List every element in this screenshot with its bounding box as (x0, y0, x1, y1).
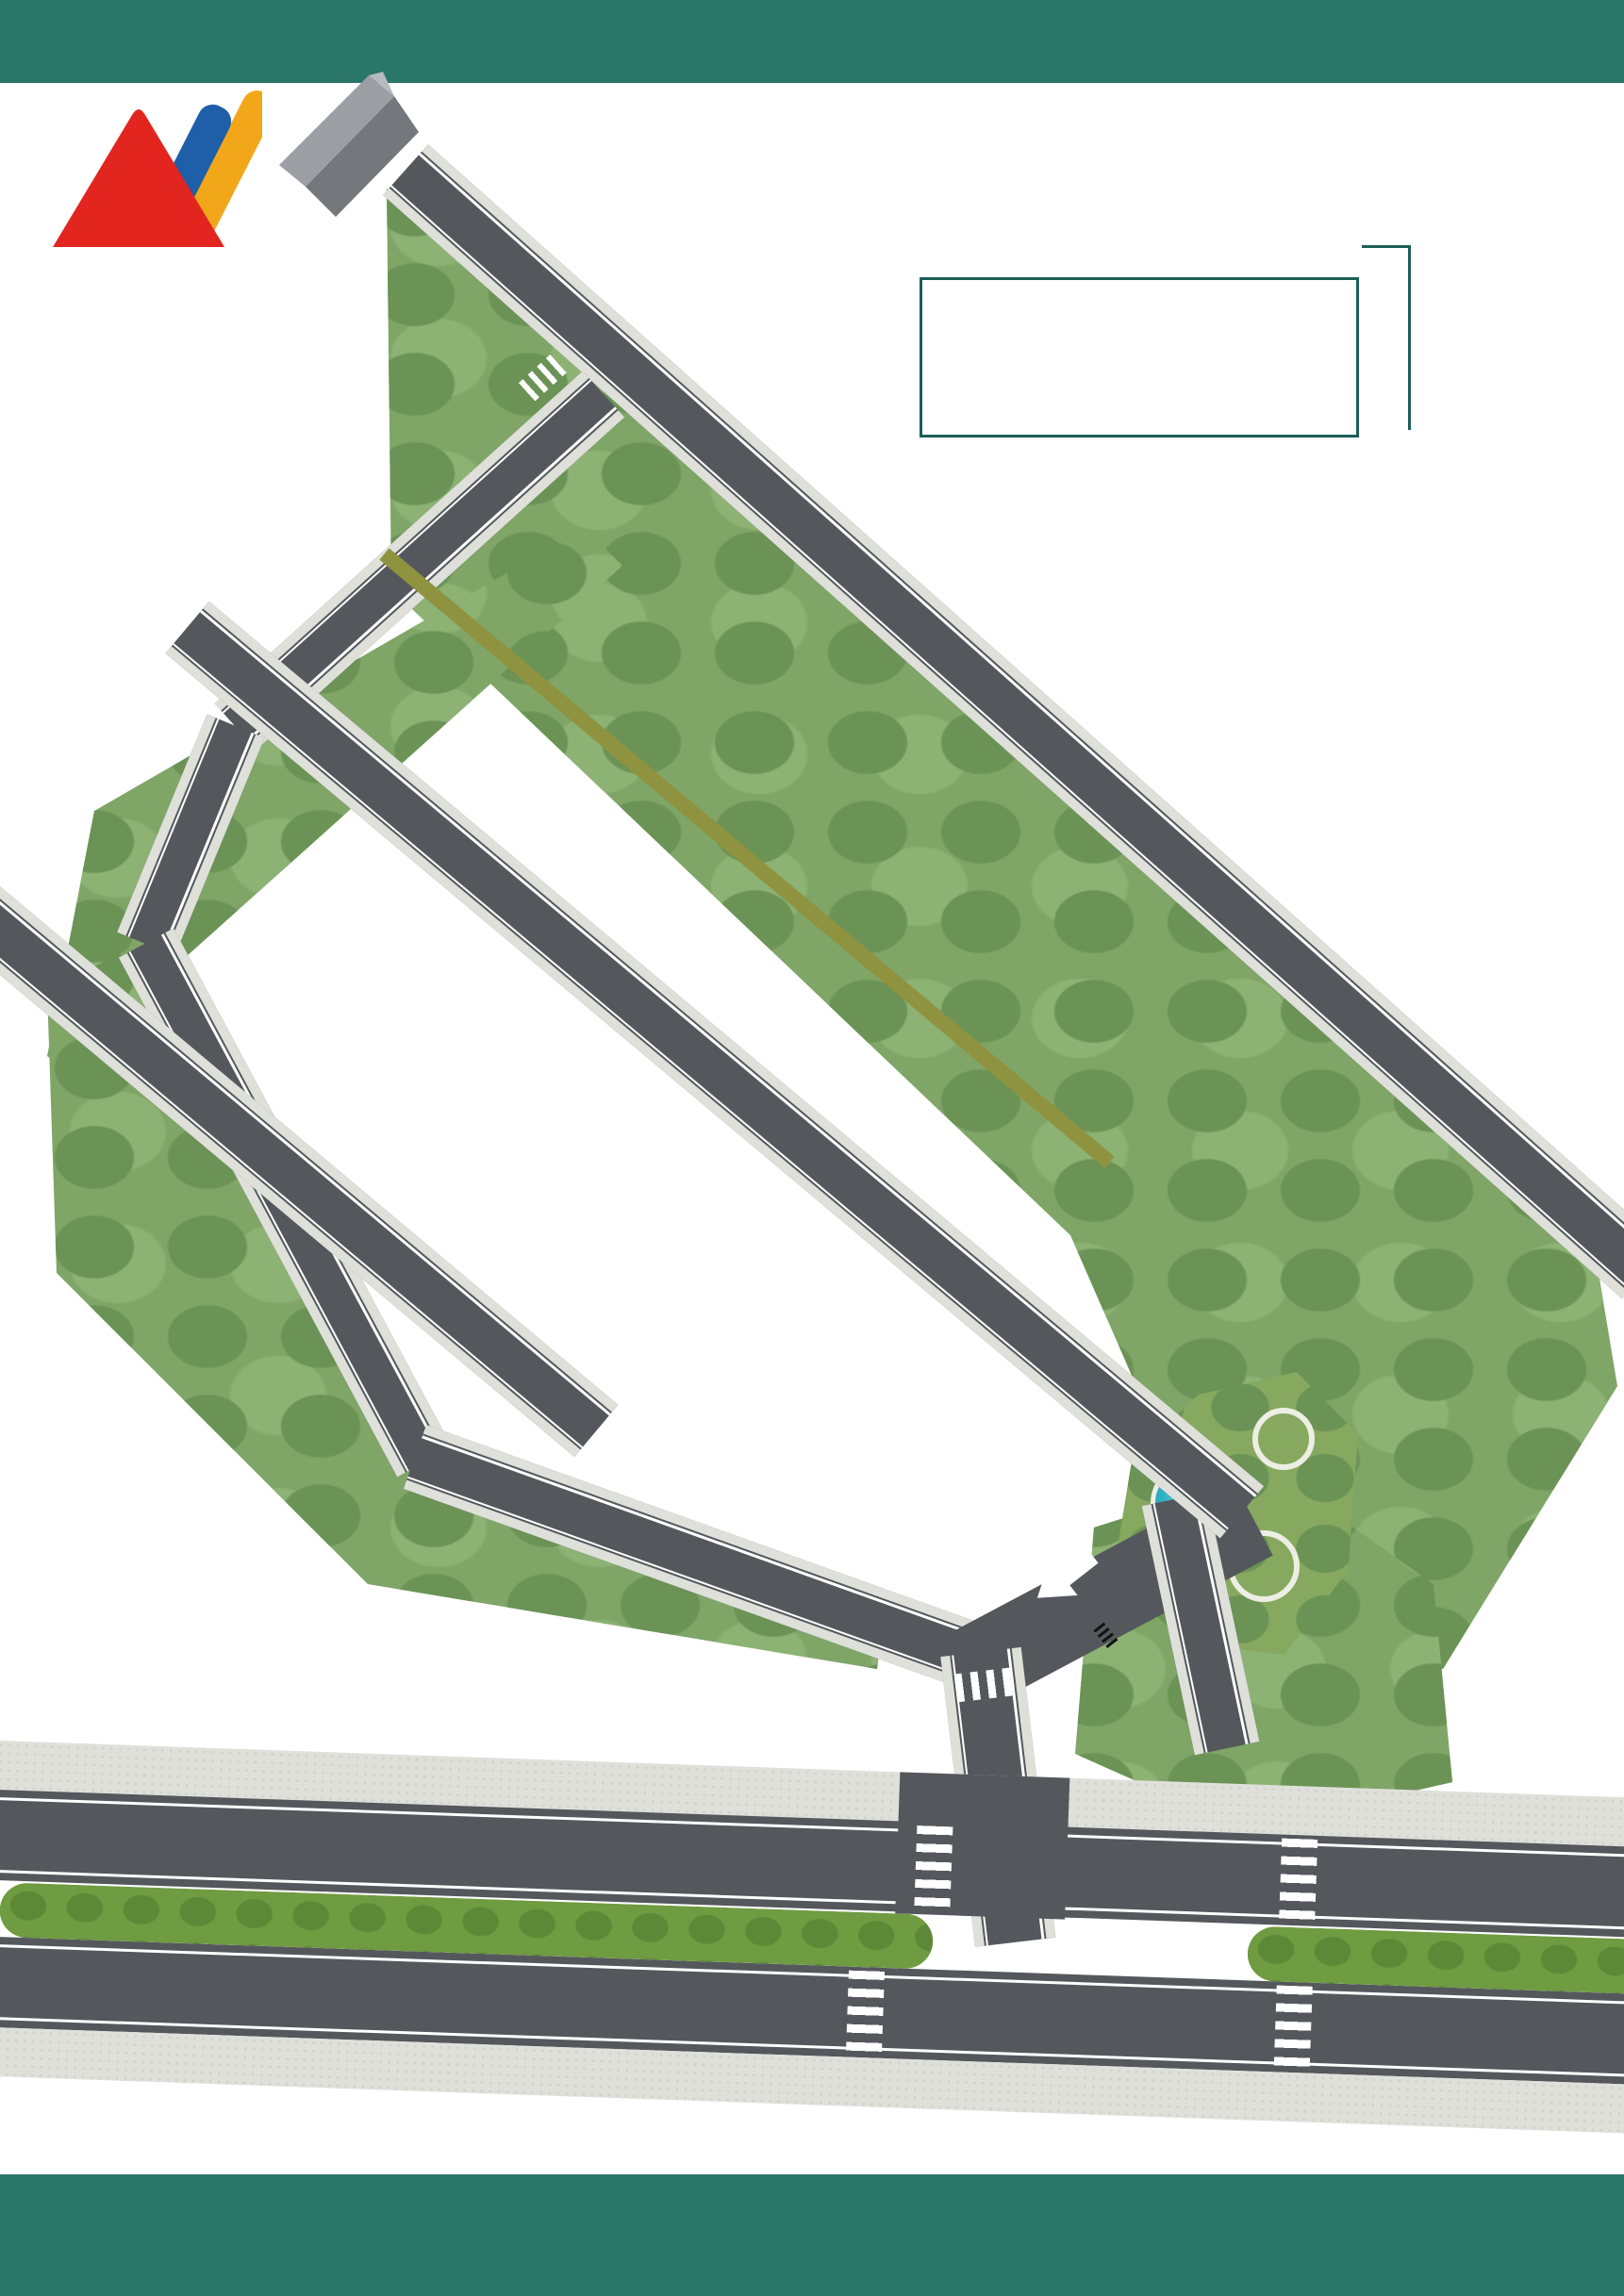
boulevard-nguyen-tat-thanh (0, 1740, 1624, 2135)
footer-band (0, 2174, 1624, 2296)
park-path-circle (1252, 1408, 1315, 1470)
crosswalk (846, 1971, 885, 2056)
crosswalk (1279, 1839, 1317, 1924)
logo-mountains-icon (45, 87, 262, 256)
dai-phat-logo (45, 87, 262, 322)
gate-structure (270, 66, 477, 245)
crosswalk (914, 1825, 953, 1911)
legend-connector (1362, 245, 1411, 248)
crosswalk (1274, 1985, 1313, 2071)
header-band (0, 0, 1624, 83)
compass-rose (1309, 477, 1601, 769)
crosswalk (954, 1667, 1016, 1702)
legend-box (920, 277, 1359, 438)
land-plot-map-poster (0, 0, 1624, 2296)
legend-connector (1408, 245, 1411, 430)
